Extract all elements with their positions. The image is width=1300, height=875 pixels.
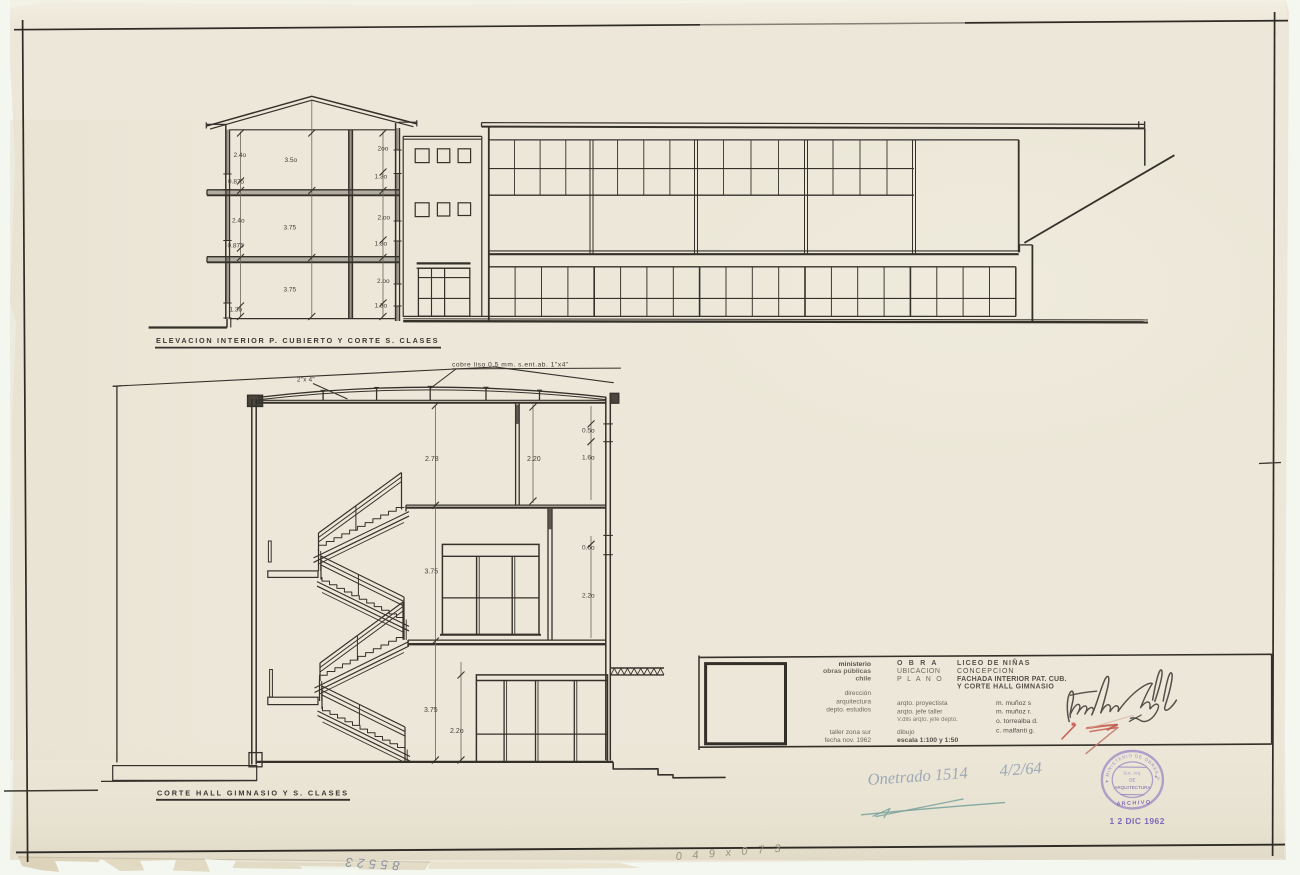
svg-text:1.3o: 1.3o — [375, 174, 388, 181]
svg-text:2.78: 2.78 — [425, 456, 439, 463]
svg-text:LICEO DE NIÑAS: LICEO DE NIÑAS — [957, 658, 1031, 667]
svg-text:arquitectura: arquitectura — [836, 698, 871, 705]
svg-text:arqto. jefe taller: arqto. jefe taller — [897, 708, 943, 715]
svg-text:✦: ✦ — [1105, 779, 1109, 784]
svg-text:2.4o: 2.4o — [232, 218, 245, 225]
svg-text:Y CORTE HALL GIMNASIO: Y CORTE HALL GIMNASIO — [957, 684, 1054, 691]
svg-text:2.4o: 2.4o — [234, 152, 247, 159]
svg-text:0.875: 0.875 — [228, 243, 245, 250]
svg-text:4/2/64: 4/2/64 — [999, 758, 1042, 780]
svg-text:1.3o: 1.3o — [375, 303, 388, 310]
svg-text:ministerio: ministerio — [839, 661, 871, 668]
svg-text:m. muñoz s: m. muñoz s — [996, 700, 1032, 707]
svg-text:1.6o: 1.6o — [582, 455, 595, 462]
svg-text:m. muñoz r.: m. muñoz r. — [996, 708, 1032, 715]
svg-text:1.3o: 1.3o — [230, 307, 243, 314]
svg-text:dirección: dirección — [845, 690, 872, 697]
svg-text:P L A N O: P L A N O — [897, 676, 944, 683]
svg-text:2.2o: 2.2o — [450, 728, 464, 735]
svg-text:0.5o: 0.5o — [582, 428, 595, 435]
svg-text:3.75: 3.75 — [424, 707, 438, 714]
svg-text:dibujo: dibujo — [897, 729, 915, 736]
svg-text:depto. estudios: depto. estudios — [826, 707, 871, 714]
svg-text:1 2 DIC 1962: 1 2 DIC 1962 — [1110, 816, 1165, 826]
svg-text:2.2o: 2.2o — [582, 593, 595, 600]
svg-text:cobre liso 0.5 mm. s.ent.: cobre liso 0.5 mm. s.ent.ab. 1"x4" — [452, 362, 569, 369]
svg-text:FACHADA INTERIOR PAT. CUB.: FACHADA INTERIOR PAT. CUB. — [957, 676, 1067, 683]
svg-text:3.5o: 3.5o — [285, 157, 298, 164]
svg-text:1.3o: 1.3o — [375, 241, 388, 248]
svg-text:2.20: 2.20 — [527, 456, 541, 463]
svg-text:0.875: 0.875 — [228, 179, 245, 186]
svg-text:3.75: 3.75 — [425, 569, 439, 576]
svg-text:2"x 4": 2"x 4" — [297, 377, 315, 384]
svg-text:2oo: 2oo — [378, 146, 389, 153]
svg-text:chile: chile — [856, 675, 872, 682]
svg-text:taller zona sur: taller zona sur — [830, 729, 872, 736]
svg-text:✦: ✦ — [1154, 774, 1158, 779]
svg-text:obras públicas: obras públicas — [823, 668, 871, 675]
svg-text:ELEVACION INTERIOR P. CUBI: ELEVACION INTERIOR P. CUBIERTO Y CORTE S… — [156, 336, 439, 345]
svg-text:V.dlls arqto. jefe depto.: V.dlls arqto. jefe depto. — [897, 717, 958, 723]
svg-text:o. torrealba d.: o. torrealba d. — [996, 718, 1038, 725]
svg-text:Suc. Arq.: Suc. Arq. — [1123, 771, 1141, 776]
svg-text:UBICACION: UBICACION — [897, 668, 940, 675]
svg-text:CORTE HALL GIMNASIO Y S. C: CORTE HALL GIMNASIO Y S. CLASES — [157, 788, 349, 797]
svg-text:2.oo: 2.oo — [378, 215, 391, 222]
svg-text:escala 1:100 y 1:50: escala 1:100 y 1:50 — [897, 737, 958, 744]
svg-text:DE: DE — [1129, 778, 1135, 783]
svg-text:3.75: 3.75 — [284, 225, 297, 232]
svg-text:ARQUITECTURA: ARQUITECTURA — [1114, 785, 1151, 790]
svg-text:O B R A: O B R A — [897, 660, 939, 667]
svg-text:3.75: 3.75 — [284, 287, 297, 294]
svg-text:arqto. proyectista: arqto. proyectista — [897, 700, 948, 707]
svg-text:fecha nov. 1962: fecha nov. 1962 — [825, 737, 872, 744]
svg-text:2.oo: 2.oo — [377, 278, 390, 285]
svg-text:0.6o: 0.6o — [582, 545, 595, 552]
svg-text:CONCEPCION: CONCEPCION — [957, 668, 1014, 675]
svg-text:c. malfanti g.: c. malfanti g. — [996, 728, 1035, 735]
